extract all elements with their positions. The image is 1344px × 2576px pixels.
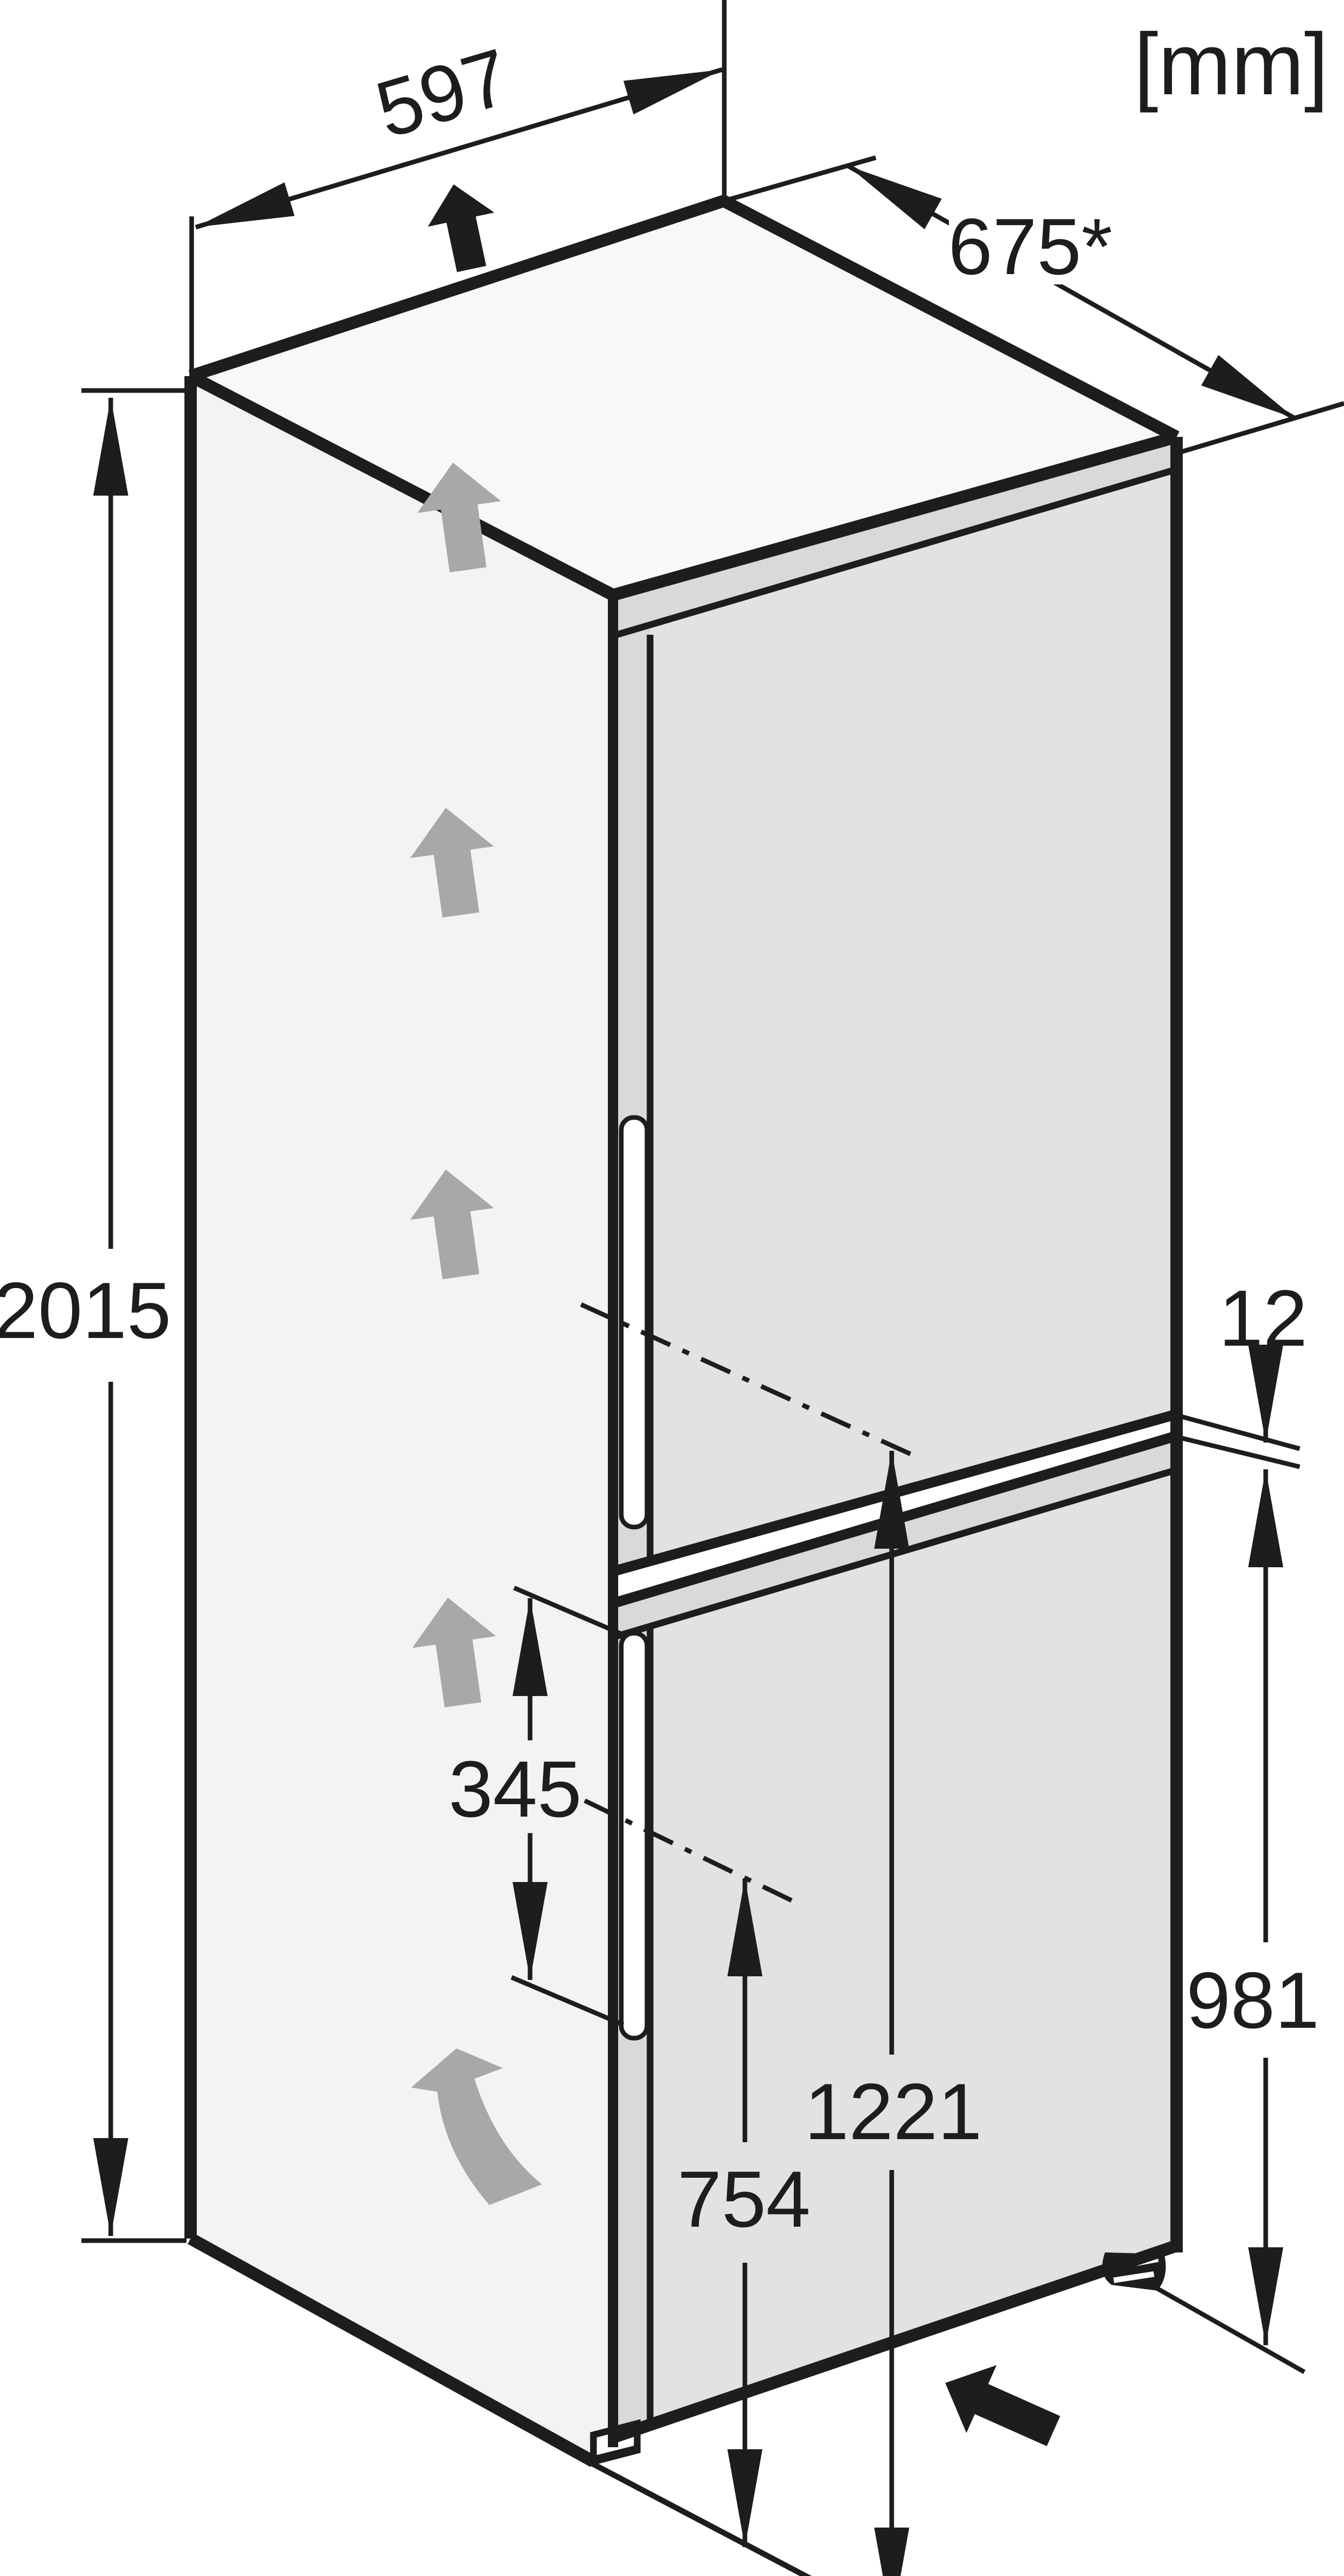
side-face [191,376,613,2462]
label-unit: [mm] [1134,15,1329,113]
label-handle-length: 345 [449,1744,582,1834]
floor-line-right [1152,2285,1304,2372]
ext-line-depth-left [724,158,876,201]
label-gap: 12 [1219,1274,1307,1363]
label-depth: 675* [948,202,1113,291]
label-1221: 1221 [805,2067,982,2156]
lower-door-handle-recess [621,1633,647,2038]
floor-line-left [592,2464,923,2576]
label-door-height: 981 [1186,1956,1320,2045]
door-swing-arrow-top-icon [420,177,505,276]
label-height: 2015 [0,1266,171,1355]
ext-line-depth-right [1180,403,1344,452]
fridge-dimension-diagram: [mm] 597 675* 2015 12 345 981 1221 754 [0,0,1344,2576]
label-754: 754 [677,2155,811,2244]
door-swing-arrow-bottom-icon [930,2349,1069,2465]
